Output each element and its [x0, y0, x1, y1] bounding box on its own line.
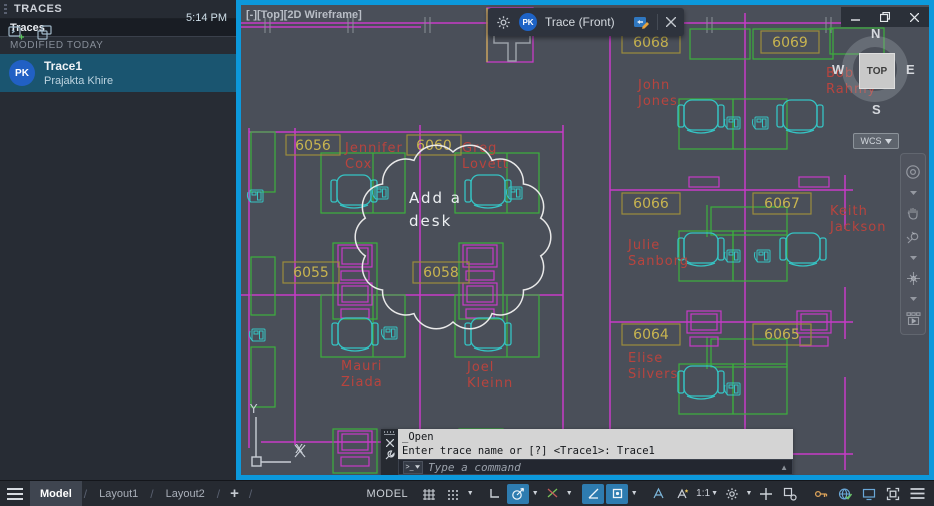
trace-name: Trace1	[44, 59, 113, 74]
svg-text:6068: 6068	[633, 35, 669, 51]
compass-west[interactable]: W	[832, 62, 844, 77]
edit-trace-icon[interactable]	[633, 14, 649, 30]
restore-button[interactable]	[875, 9, 895, 25]
annotation-visibility-icon[interactable]	[647, 484, 669, 504]
new-layout-button[interactable]: +	[222, 485, 247, 502]
chevron-down-icon[interactable]	[910, 191, 917, 195]
wcs-label: WCS	[861, 136, 882, 146]
name-label: EliseSilvers	[628, 351, 678, 382]
drawing-window: 6056 6060 6068 6069 6055 6058 6066 6067 …	[236, 0, 934, 480]
compass-east[interactable]: E	[906, 62, 915, 77]
close-command-icon[interactable]	[386, 439, 394, 447]
ortho-toggle-icon[interactable]	[483, 484, 505, 504]
compass-north[interactable]: N	[871, 26, 880, 41]
svg-text:6055: 6055	[293, 265, 329, 281]
svg-text:6058: 6058	[423, 265, 459, 281]
security-key-icon[interactable]	[810, 484, 832, 504]
close-window-icon[interactable]	[904, 9, 924, 25]
room-label: 6066	[622, 193, 680, 214]
palette-grip[interactable]	[4, 4, 7, 15]
name-label: MauriZiada	[341, 359, 383, 390]
name-label: JulieSanborg	[627, 238, 689, 269]
clean-screen-icon[interactable]	[882, 484, 904, 504]
customize-wrench-icon[interactable]	[385, 450, 395, 460]
orbit-icon[interactable]	[906, 271, 921, 286]
trace-list-item[interactable]: PK Trace1 Prajakta Khire 5:14 PM	[0, 54, 236, 92]
name-label: KeithJackson	[829, 204, 886, 235]
svg-text:X: X	[295, 442, 303, 456]
annotation-scale-button[interactable]: 1:1▼	[695, 484, 719, 504]
command-grip[interactable]	[384, 431, 395, 436]
collaborator-avatar[interactable]: PK	[519, 13, 537, 31]
layout-menu-icon[interactable]	[0, 481, 30, 506]
room-label: 6069	[761, 31, 819, 53]
crosshair-icon[interactable]	[755, 484, 777, 504]
chevron-down-icon[interactable]: ▼	[745, 490, 753, 497]
annotation-autoscale-icon[interactable]	[671, 484, 693, 504]
svg-text:6065: 6065	[764, 327, 800, 343]
command-input[interactable]: >_ Type a command ▲	[398, 459, 793, 475]
polar-tracking-icon[interactable]	[507, 484, 529, 504]
wcs-menu[interactable]: WCS	[853, 133, 899, 149]
room-label: 6067	[753, 193, 811, 214]
snap-toggle-icon[interactable]	[442, 484, 464, 504]
traces-toolbar	[0, 21, 236, 45]
compass-south[interactable]: S	[872, 102, 881, 117]
room-label: 6055	[283, 262, 339, 283]
navigation-bar	[900, 153, 926, 335]
zoom-icon[interactable]	[906, 231, 920, 245]
room-label: 6056	[286, 135, 340, 155]
viewcube[interactable]: N W E S TOP	[838, 28, 914, 124]
room-label: 6058	[413, 262, 469, 283]
chevron-down-icon[interactable]	[910, 297, 917, 301]
layout-tabs: Model / Layout1 / Layout2 / + /	[0, 481, 254, 506]
command-window-side	[381, 429, 398, 475]
command-window: _Open Enter trace name or [?] <Trace1>: …	[381, 429, 793, 475]
chevron-down-icon[interactable]: ▼	[531, 490, 539, 497]
tab-separator: /	[247, 487, 254, 501]
history-up-icon[interactable]: ▲	[780, 463, 788, 472]
status-toggles: MODEL ▼ ▼ ▼	[367, 484, 934, 504]
model-space-button[interactable]: MODEL	[367, 488, 409, 500]
revision-cloud[interactable]	[355, 145, 551, 329]
minimize-button[interactable]	[846, 9, 866, 25]
isolate-objects-icon[interactable]	[779, 484, 801, 504]
drawing-canvas[interactable]: 6056 6060 6068 6069 6055 6058 6066 6067 …	[241, 5, 929, 475]
svg-text:6064: 6064	[633, 327, 669, 343]
svg-text:6056: 6056	[295, 138, 331, 154]
tab-separator: /	[148, 487, 155, 501]
object-snap-icon[interactable]	[606, 484, 628, 504]
svg-text:6069: 6069	[772, 35, 808, 51]
close-trace-icon[interactable]	[666, 17, 676, 27]
name-label: JoelKleinn	[466, 360, 513, 391]
graphics-performance-icon[interactable]	[834, 484, 856, 504]
name-label: JohnJones	[637, 78, 678, 109]
window-controls	[841, 7, 929, 27]
command-prompt-icon[interactable]: >_	[403, 461, 423, 474]
object-snap-tracking-icon[interactable]	[582, 484, 604, 504]
tab-separator: /	[215, 487, 222, 501]
room-labels[interactable]: 6056 6060 6068 6069 6055 6058 6066 6067 …	[283, 31, 819, 345]
toolbar-divider	[657, 14, 658, 30]
viewport-controls[interactable]: [-][Top][2D Wireframe]	[246, 9, 362, 21]
room-label: 6064	[622, 324, 680, 345]
svg-text:Y: Y	[249, 402, 258, 416]
trace-author: Prajakta Khire	[44, 74, 113, 88]
room-label: 6065	[753, 324, 811, 345]
chevron-down-icon[interactable]: ▼	[466, 490, 474, 497]
svg-text:6067: 6067	[764, 196, 800, 212]
svg-text:6066: 6066	[633, 196, 669, 212]
workspace-gear-icon[interactable]	[721, 484, 743, 504]
hardware-acceleration-icon[interactable]	[858, 484, 880, 504]
command-placeholder: Type a command	[428, 461, 775, 474]
tab-model[interactable]: Model	[30, 481, 82, 506]
tab-layout2[interactable]: Layout2	[156, 481, 215, 506]
pan-hand-icon[interactable]	[906, 206, 920, 220]
desks[interactable]	[251, 28, 884, 473]
chevron-down-icon	[885, 139, 892, 144]
navigation-wheel-icon[interactable]	[905, 164, 921, 180]
customization-menu-icon[interactable]	[906, 484, 928, 504]
show-motion-icon[interactable]	[906, 312, 921, 325]
command-history[interactable]: _Open Enter trace name or [?] <Trace1>: …	[398, 429, 793, 459]
tab-separator: /	[82, 487, 89, 501]
new-trace-icon[interactable]	[8, 25, 26, 41]
chevron-down-icon[interactable]	[910, 256, 917, 260]
tab-layout1[interactable]: Layout1	[89, 481, 148, 506]
avatar: PK	[9, 60, 35, 86]
isometric-drafting-icon[interactable]	[541, 484, 563, 504]
traces-palette: TRACES Traces MODIFIED TODAY PK Trace1 P…	[0, 0, 236, 480]
autocad-app: TRACES Traces MODIFIED TODAY PK Trace1 P…	[0, 0, 934, 506]
trace-toolbar: PK Trace (Front)	[488, 8, 684, 36]
status-bar: Model / Layout1 / Layout2 / + / MODEL ▼	[0, 480, 934, 506]
chevron-down-icon[interactable]: ▼	[565, 490, 573, 497]
ucs-icon[interactable]: Y X	[249, 402, 305, 466]
trace-time: 5:14 PM	[186, 12, 227, 24]
trace-palette-icon[interactable]	[36, 25, 54, 41]
trace-settings-gear-icon[interactable]	[496, 15, 511, 30]
cloud-annotation[interactable]: Add a desk	[409, 189, 469, 230]
viewcube-top-face[interactable]: TOP	[859, 53, 895, 89]
chevron-down-icon[interactable]: ▼	[630, 490, 638, 497]
trace-title: Trace (Front)	[545, 15, 625, 29]
grid-toggle-icon[interactable]	[418, 484, 440, 504]
